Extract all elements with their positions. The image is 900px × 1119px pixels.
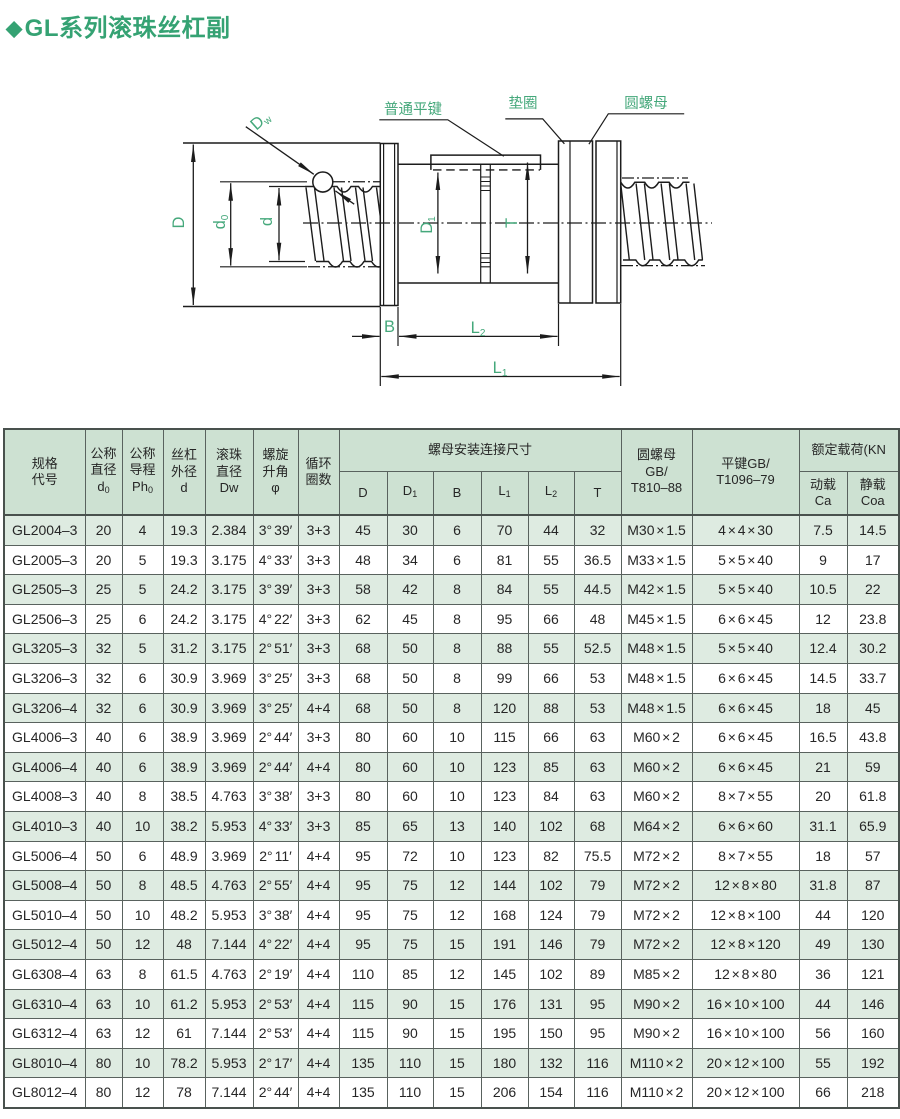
svg-text:D: D [170, 216, 188, 228]
svg-text:d: d [258, 217, 276, 226]
svg-text:L2: L2 [471, 319, 486, 339]
svg-text:d0: d0 [211, 214, 231, 229]
svg-text:普通平键: 普通平键 [384, 101, 442, 118]
svg-text:圆螺母: 圆螺母 [624, 95, 668, 112]
svg-text:D1: D1 [418, 216, 438, 234]
svg-text:L1: L1 [493, 359, 508, 379]
svg-text:B: B [384, 318, 395, 336]
svg-text:垫圈: 垫圈 [509, 95, 538, 112]
svg-text:T: T [503, 218, 521, 228]
